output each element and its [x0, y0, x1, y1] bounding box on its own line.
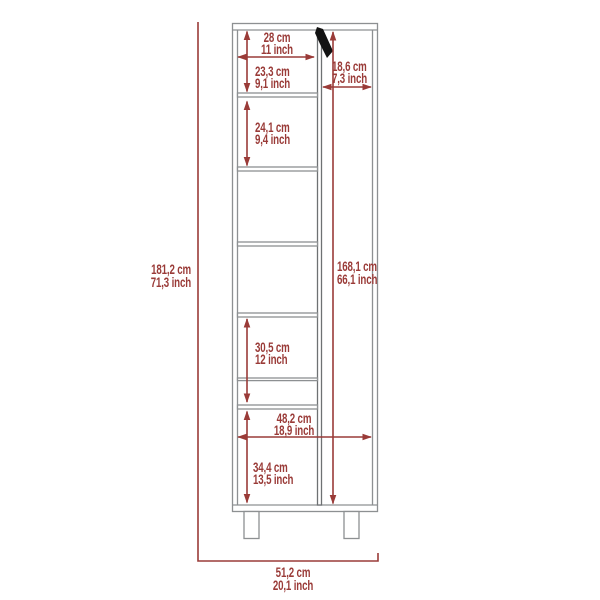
- second-compartment-height-inch: 9,4 inch: [255, 133, 290, 148]
- door-width-inch: 7,3 inch: [332, 72, 367, 87]
- interior-width-inch: 18,9 inch: [274, 424, 314, 439]
- bottom-compartment-height-inch: 13,5 inch: [253, 473, 293, 488]
- label-overall-height: 181,2 cm 71,3 inch: [151, 263, 191, 291]
- shelf-6: [238, 405, 318, 409]
- label-overall-width: 51,2 cm 20,1 inch: [273, 566, 313, 594]
- lower-compartment-height-inch: 12 inch: [255, 353, 287, 368]
- label-bottom-compartment-height: 34,4 cm 13,5 inch: [253, 461, 293, 488]
- label-top-compartment-height: 23,3 cm 9,1 inch: [255, 65, 290, 92]
- shelf-2: [238, 167, 318, 171]
- label-second-compartment-height: 24,1 cm 9,4 inch: [255, 121, 290, 148]
- label-door-height: 168,1 cm 66,1 inch: [337, 260, 377, 288]
- dimension-labels: 28 cm 11 inch 23,3 cm 9,1 inch 18,6 cm 7…: [151, 31, 378, 594]
- shelf-1: [238, 93, 318, 97]
- door-height-inch: 66,1 inch: [337, 273, 377, 288]
- overall-width-inch: 20,1 inch: [273, 579, 313, 594]
- right-leg: [344, 512, 359, 539]
- overall-height-inch: 71,3 inch: [151, 276, 191, 291]
- cabinet-center-divider: [318, 30, 322, 505]
- shelf-5: [238, 378, 318, 381]
- label-lower-compartment-height: 30,5 cm 12 inch: [255, 341, 290, 368]
- shelf-3: [238, 242, 318, 246]
- label-top-compartment-width: 28 cm 11 inch: [261, 31, 293, 58]
- left-leg: [244, 512, 259, 539]
- label-interior-width: 48,2 cm 18,9 inch: [274, 412, 314, 439]
- cabinet-dimension-figure: 28 cm 11 inch 23,3 cm 9,1 inch 18,6 cm 7…: [0, 0, 600, 600]
- shelf-4: [238, 313, 318, 317]
- top-compartment-height-inch: 9,1 inch: [255, 77, 290, 92]
- dimension-diagram: 28 cm 11 inch 23,3 cm 9,1 inch 18,6 cm 7…: [0, 0, 600, 600]
- top-compartment-width-inch: 11 inch: [261, 43, 293, 58]
- label-door-width: 18,6 cm 7,3 inch: [332, 60, 367, 87]
